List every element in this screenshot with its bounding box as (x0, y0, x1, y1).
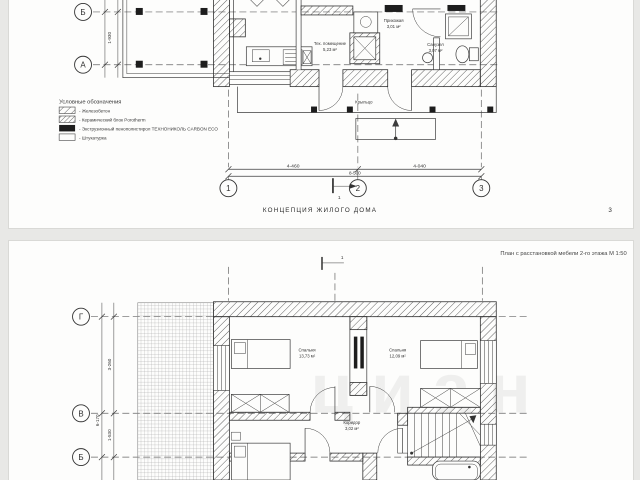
room-name-bath: Санузел (427, 42, 444, 47)
window-right-1 (480, 341, 496, 384)
wash-basin (423, 53, 433, 63)
room-area-corridor: 3,02 м² (345, 426, 359, 431)
room-area-bedroom2: 12,09 м² (390, 354, 407, 359)
wardrobe-left (231, 394, 289, 412)
staircase (398, 407, 481, 457)
axis-g: Г (79, 313, 84, 322)
axis-2: 2 (356, 184, 361, 193)
shower (445, 14, 471, 39)
floor-plan-2: циан План с расстановкой мебели 2-го эта… (9, 241, 633, 480)
corridor: Коридор 3,02 м² (343, 420, 360, 431)
washing-machine (354, 12, 378, 33)
axis-3: 3 (479, 184, 484, 193)
room-name-hall: Прихожая (384, 18, 404, 23)
legend-item-4: - Штукатурка (79, 135, 107, 140)
legend-title: Условные обозначения (59, 100, 121, 106)
floor-plan-1: 1-930 (9, 0, 633, 228)
hallway: Прихожая 3,01 м² (384, 5, 404, 29)
legend-item-2: - Керамический блок Porotherm (79, 116, 146, 122)
axis-a: А (80, 61, 86, 70)
axis-bubbles-left: Б А (75, 3, 92, 73)
lower-roof (138, 303, 214, 480)
section-label-top: 1 (341, 255, 344, 260)
legend-item-1: - Железобетон (79, 109, 111, 114)
vent-shaft (350, 33, 380, 64)
room-area-bedroom1: 13,73 м² (299, 354, 316, 359)
dim2-seg1: 3-260 (107, 358, 112, 370)
bed-2 (421, 341, 478, 369)
axis-b: Б (80, 8, 85, 17)
sheet-caption: КОНЦЕПЦИЯ ЖИЛОГО ДОМА (263, 207, 377, 214)
legend: Условные обозначения - Железобетон - Кер… (59, 100, 218, 141)
window-left (213, 346, 229, 391)
left-dimension-chain-2: 3-260 1-530 6-170 (95, 303, 117, 480)
window-right-2 (480, 424, 496, 445)
sheet-page-1: 1-930 (8, 0, 634, 229)
legend-swatch-solid (59, 125, 75, 131)
room-area-tech: 5,23 м² (323, 47, 337, 52)
legend-swatch-empty (59, 134, 75, 140)
page-number: 3 (608, 207, 613, 214)
dim2-total: 6-170 (95, 414, 100, 426)
bathroom: Санузел 3,07 м² (413, 5, 479, 70)
chimney-flue (229, 19, 245, 37)
sheet-page-2: циан План с расстановкой мебели 2-го эта… (8, 240, 634, 480)
axis-v: В (78, 409, 83, 418)
room-name-tech: Тех. помещение (314, 41, 347, 46)
room-name-bedroom1: Спальня (298, 348, 316, 353)
chair (251, 0, 264, 6)
document-viewer: 1-930 (0, 0, 640, 480)
section-mark-top: 1 (322, 255, 344, 301)
dim-seg1: 4-460 (287, 163, 300, 169)
room-name-bedroom2: Спальня (389, 348, 407, 353)
bathtub (433, 461, 481, 480)
insulation-block (447, 5, 465, 11)
french-window (229, 72, 290, 85)
entry-arrow (392, 118, 399, 140)
dim-total: 8-500 (349, 171, 361, 176)
room-name-porch: Крыльцо (355, 100, 373, 105)
plan-title: План с расстановкой мебели 2-го этажа М … (500, 250, 626, 257)
porch: Крыльцо (237, 87, 496, 141)
dim-left: 1-930 (107, 32, 112, 44)
left-dimension-chain: 1-930 (102, 0, 121, 78)
wardrobe-right (421, 388, 481, 407)
toilet (456, 46, 478, 63)
bed-1 (231, 340, 290, 369)
legend-swatch-hatch (59, 107, 75, 113)
room-area-hall: 3,01 м² (387, 24, 401, 29)
door-bedroom3 (305, 428, 330, 453)
axis-1: 1 (226, 184, 231, 193)
section-label: 1 (338, 195, 341, 201)
room-name-corridor: Коридор (343, 420, 360, 425)
room-area-bath: 3,07 м² (429, 48, 443, 53)
bed-3 (231, 432, 290, 480)
chair (277, 0, 290, 6)
bottom-dimensions: 4-460 4-040 8-500 (225, 163, 484, 179)
dim2-seg2: 1-530 (107, 429, 112, 441)
central-partition (350, 317, 367, 396)
dim-seg2: 4-040 (413, 163, 426, 169)
axis-bubbles-bottom: 1 2 3 (220, 180, 490, 197)
axis-b2: Б (78, 453, 83, 462)
axis-bubbles-left-2: Г В Б (73, 308, 90, 465)
bath-door (413, 9, 441, 37)
legend-item-3: - Экструзионный пенополистирол ТЕХНОНИКО… (79, 125, 218, 131)
insulation-block (385, 5, 403, 12)
legend-swatch-hatch-dense (59, 116, 75, 122)
